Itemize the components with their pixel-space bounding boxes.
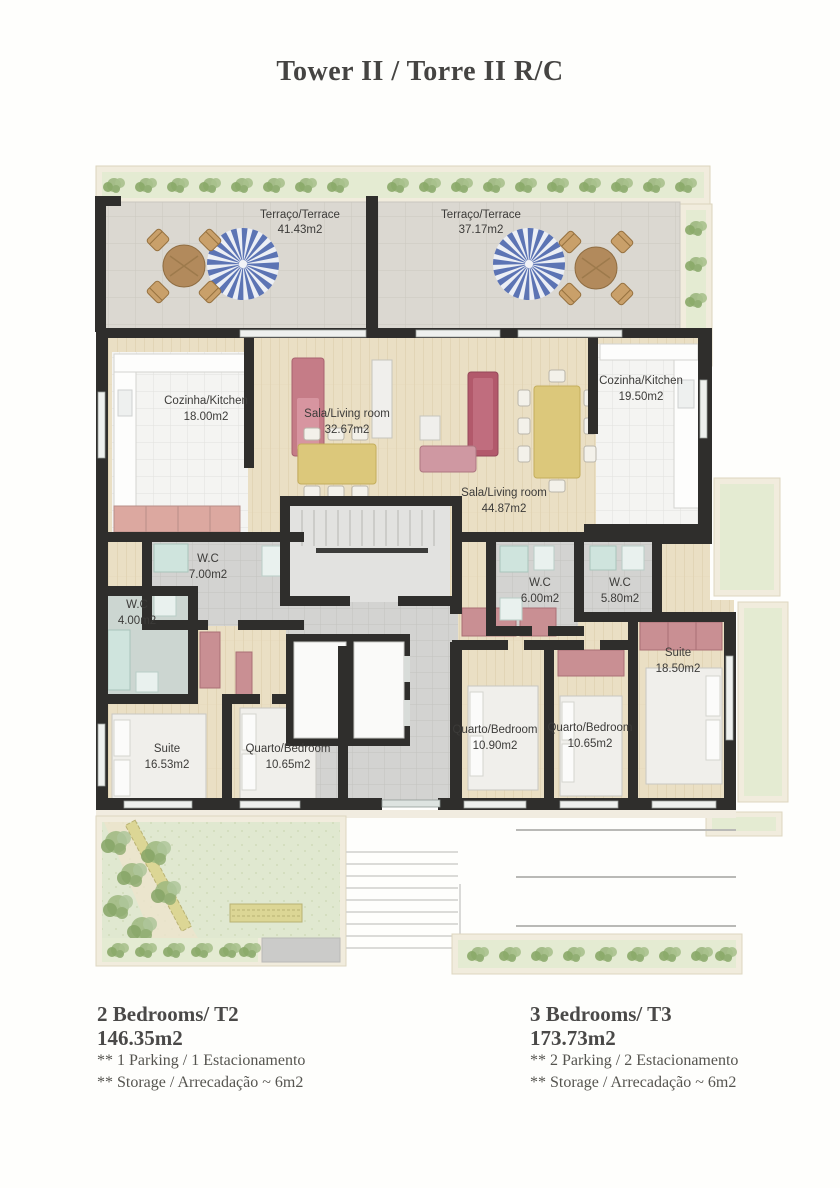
paved-pad xyxy=(262,938,340,962)
area-bedroom-t2: 10.65m2 xyxy=(266,759,311,771)
legend-t3-parking: ** 2 Parking / 2 Estacionamento xyxy=(530,1050,840,1072)
label-bedroom2-t3: Quarto/Bedroom xyxy=(547,722,632,734)
area-terrace-left: 41.43m2 xyxy=(278,224,323,236)
legend-t2-name: 2 Bedrooms/ T2 xyxy=(97,1002,457,1026)
label-living-t3: Sala/Living room xyxy=(461,487,547,499)
parasol-icon-right xyxy=(493,228,565,300)
area-suite-t2: 16.53m2 xyxy=(145,759,190,771)
label-bedroom1-t3: Quarto/Bedroom xyxy=(452,724,537,736)
label-wc1-t3: W.C xyxy=(529,577,551,589)
legend-t3: 3 Bedrooms/ T3 173.73m2 ** 2 Parking / 2… xyxy=(530,1002,840,1094)
legend-t3-name: 3 Bedrooms/ T3 xyxy=(530,1002,840,1026)
legend-t3-storage: ** Storage / Arrecadação ~ 6m2 xyxy=(530,1072,840,1094)
area-wc2-t2: 4.00m2 xyxy=(118,615,156,627)
legend-t2-storage: ** Storage / Arrecadação ~ 6m2 xyxy=(97,1072,457,1094)
planter-top xyxy=(96,166,710,204)
entrance-door xyxy=(382,800,440,807)
label-terrace-right: Terraço/Terrace xyxy=(441,209,521,221)
label-wc1-t2: W.C xyxy=(197,553,219,565)
legend-t2-area: 146.35m2 xyxy=(97,1026,457,1050)
area-living-t3: 44.87m2 xyxy=(482,503,527,515)
area-bedroom2-t3: 10.65m2 xyxy=(568,738,613,750)
garden-left xyxy=(96,816,346,966)
legend-t3-area: 173.73m2 xyxy=(530,1026,840,1050)
area-kitchen-t2: 18.00m2 xyxy=(184,411,229,423)
area-suite-t3: 18.50m2 xyxy=(656,663,701,675)
label-living-t2: Sala/Living room xyxy=(304,408,390,420)
area-wc1-t3: 6.00m2 xyxy=(521,593,559,605)
label-terrace-left: Terraço/Terrace xyxy=(260,209,340,221)
esplanade xyxy=(452,830,742,974)
area-bedroom1-t3: 10.90m2 xyxy=(473,740,518,752)
label-wc2-t2: W.C xyxy=(126,599,148,611)
area-terrace-right: 37.17m2 xyxy=(459,224,504,236)
label-kitchen-t2: Cozinha/Kitchen xyxy=(164,395,248,407)
area-living-t2: 32.67m2 xyxy=(325,424,370,436)
label-wc2-t3: W.C xyxy=(609,577,631,589)
label-suite-t3: Suite xyxy=(665,647,691,659)
label-kitchen-t3: Cozinha/Kitchen xyxy=(599,375,683,387)
area-wc2-t3: 5.80m2 xyxy=(601,593,639,605)
area-kitchen-t3: 19.50m2 xyxy=(619,391,664,403)
area-wc1-t2: 7.00m2 xyxy=(189,569,227,581)
legend-t2: 2 Bedrooms/ T2 146.35m2 ** 1 Parking / 1… xyxy=(97,1002,457,1094)
label-suite-t2: Suite xyxy=(154,743,180,755)
legend-t2-parking: ** 1 Parking / 1 Estacionamento xyxy=(97,1050,457,1072)
entrance-steps xyxy=(346,852,458,948)
label-bedroom-t2: Quarto/Bedroom xyxy=(245,743,330,755)
